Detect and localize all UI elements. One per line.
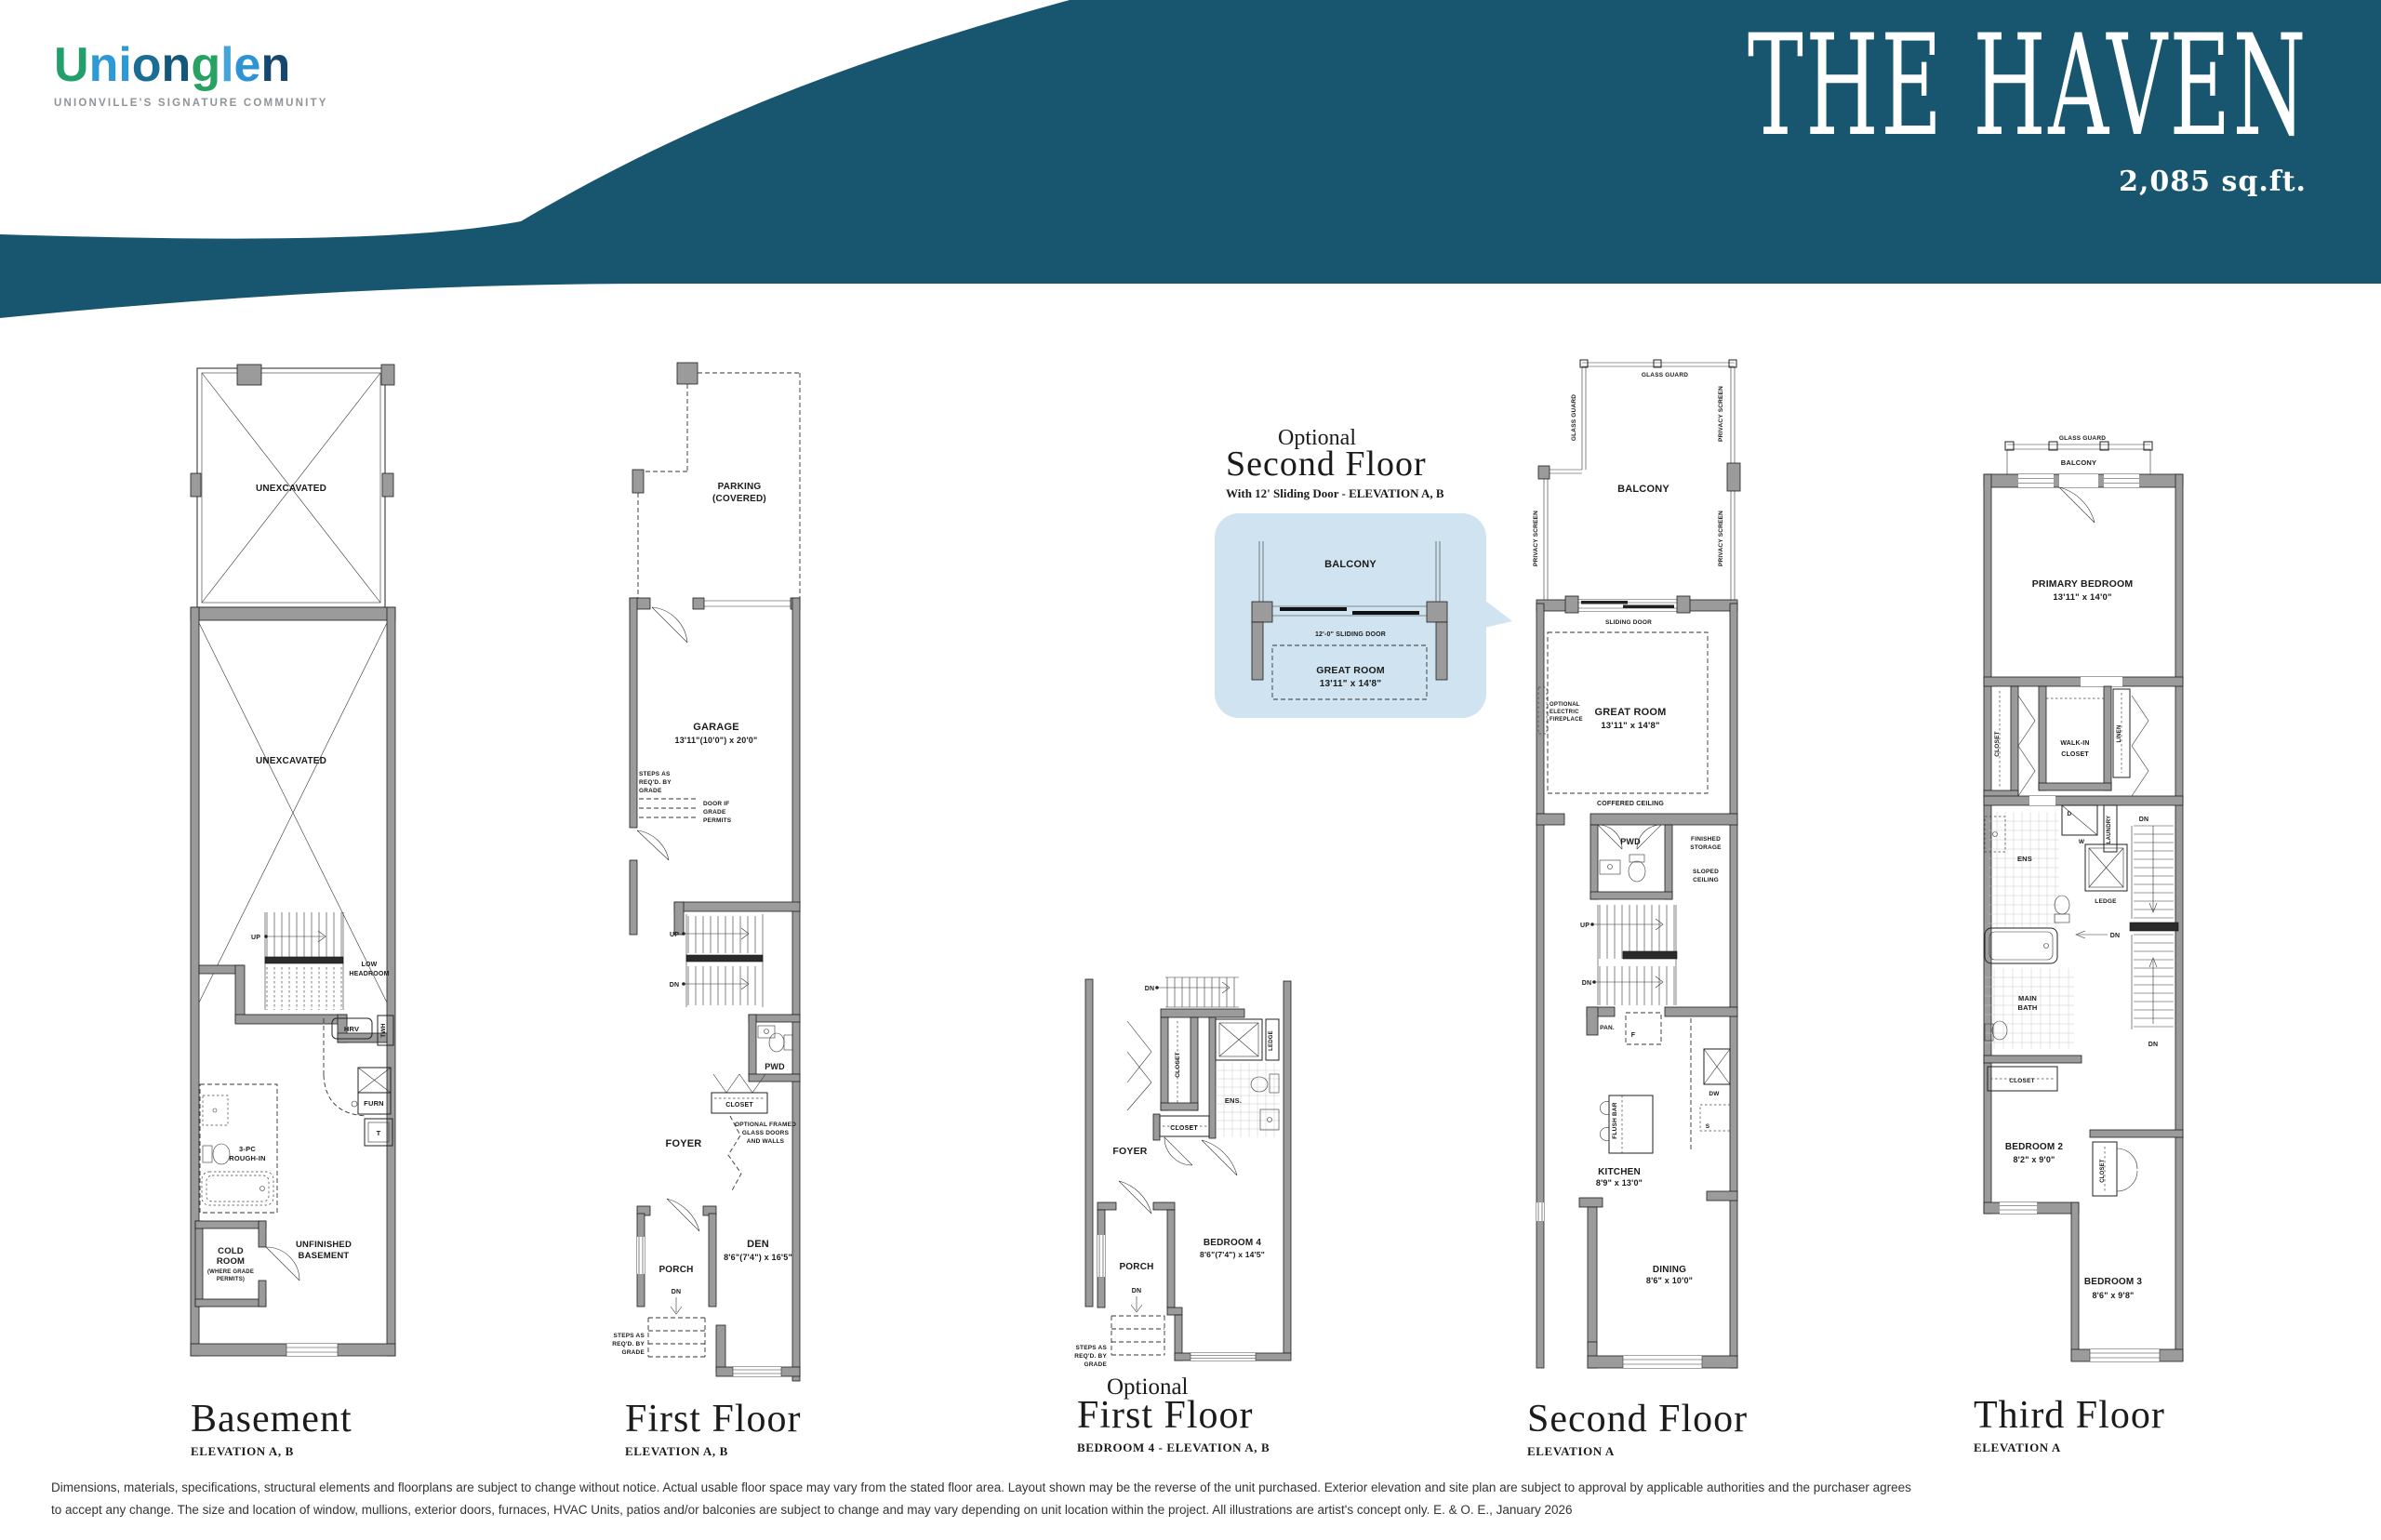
callout-drawing: BALCONY 12'-0" SLIDING DOOR GREAT ROOM 1… <box>1215 513 1486 718</box>
first-den: DEN 8'6"(7'4") x 16'5" <box>716 1239 800 1376</box>
svg-text:STEPS AS: STEPS AS <box>1075 1345 1107 1351</box>
svg-text:DN: DN <box>2139 816 2149 823</box>
svg-text:COLD: COLD <box>218 1246 244 1256</box>
svg-text:(WHERE GRADE: (WHERE GRADE <box>207 1269 254 1275</box>
disclaimer-line-2: to accept any change. The size and locat… <box>51 1499 2344 1521</box>
svg-text:S: S <box>1706 1123 1710 1130</box>
svg-text:PWD: PWD <box>1620 837 1641 846</box>
svg-text:AND WALLS: AND WALLS <box>747 1138 785 1145</box>
svg-text:STEPS AS: STEPS AS <box>613 1333 645 1339</box>
svg-text:DN: DN <box>670 982 680 989</box>
svg-text:PRIVACY SCREEN: PRIVACY SCREEN <box>1718 511 1724 566</box>
svg-text:UP: UP <box>1580 923 1590 929</box>
third-floor-caption: Third Floor ELEVATION A <box>1974 1393 2165 1455</box>
svg-text:CLOSET: CLOSET <box>725 1102 753 1109</box>
third-primary-bedroom: PRIMARY BEDROOM 13'11" x 14'0" <box>2032 578 2134 603</box>
svg-text:DN: DN <box>672 1289 682 1295</box>
svg-text:CLOSET: CLOSET <box>1994 731 2001 757</box>
svg-text:DOOR IF: DOOR IF <box>703 801 729 807</box>
svg-text:8'6"(7'4") x 16'5": 8'6"(7'4") x 16'5" <box>724 1253 792 1262</box>
basement-stairs: UP LOW HEADROOM <box>251 912 390 1010</box>
first-floor-plan: PARKING (COVERED) GARAGE 13'11"(10'0") x… <box>609 358 814 1400</box>
second-sliding-door-wall: SLIDING DOOR <box>1536 596 1737 626</box>
svg-text:GLASS DOORS: GLASS DOORS <box>742 1130 790 1136</box>
square-footage: 2,085 sq.ft. <box>2119 166 2307 198</box>
svg-text:8'6"(7'4") x 14'5": 8'6"(7'4") x 14'5" <box>1200 1250 1265 1259</box>
svg-text:REQ'D. BY: REQ'D. BY <box>1074 1353 1107 1360</box>
svg-text:3-PC: 3-PC <box>239 1145 256 1153</box>
svg-text:8'6" x 10'0": 8'6" x 10'0" <box>1646 1276 1693 1285</box>
svg-text:UNEXCAVATED: UNEXCAVATED <box>256 484 326 494</box>
svg-text:REQ'D. BY: REQ'D. BY <box>639 779 672 786</box>
svg-text:MAIN: MAIN <box>2018 994 2037 1002</box>
svg-text:BEDROOM 2: BEDROOM 2 <box>2005 1142 2064 1152</box>
svg-text:CLOSET: CLOSET <box>1175 1052 1181 1078</box>
svg-text:8'9" x 13'0": 8'9" x 13'0" <box>1596 1178 1643 1188</box>
svg-text:FIREPLACE: FIREPLACE <box>1550 717 1583 723</box>
svg-text:GARAGE: GARAGE <box>693 722 738 733</box>
first-optional-glass: OPTIONAL FRAMED GLASS DOORS AND WALLS <box>728 1116 796 1192</box>
basement-plan: UNEXCAVATED UNEXCAVATED UP LOW HEADROOM … <box>184 361 398 1388</box>
second-great-room: GREAT ROOM 13'11" x 14'8" OPTIONAL ELECT… <box>1538 632 1708 807</box>
svg-text:REQ'D. BY: REQ'D. BY <box>612 1341 645 1347</box>
svg-text:ROOM: ROOM <box>217 1256 245 1267</box>
basement-roughin-bath: 3-PC ROUGH-IN <box>200 1084 277 1213</box>
basement-cold-room: COLD ROOM (WHERE GRADE PERMITS) <box>195 1221 299 1307</box>
svg-text:BATH: BATH <box>2017 1003 2037 1012</box>
logo-tagline: UNIONVILLE'S SIGNATURE COMMUNITY <box>54 98 328 109</box>
svg-text:UNEXCAVATED: UNEXCAVATED <box>256 756 326 766</box>
third-bedroom2: BEDROOM 2 8'2" x 9'0" <box>1984 1142 2079 1361</box>
second-kitchen: PAN. F DW S FLUSH BAR KITCHEN 8'9" x 13'… <box>1587 1007 1737 1188</box>
svg-text:LEDGE: LEDGE <box>1269 1030 1274 1051</box>
svg-text:PRIMARY BEDROOM: PRIMARY BEDROOM <box>2032 578 2134 590</box>
second-balcony: GLASS GUARD GLASS GUARD PRIVACY SCREEN P… <box>1533 360 1740 604</box>
svg-text:BEDROOM 3: BEDROOM 3 <box>2084 1277 2143 1287</box>
svg-text:PORCH: PORCH <box>658 1265 693 1275</box>
svg-text:(COVERED): (COVERED) <box>712 494 766 504</box>
svg-text:GREAT ROOM: GREAT ROOM <box>1595 707 1667 718</box>
svg-text:GLASS GUARD: GLASS GUARD <box>2059 435 2106 442</box>
svg-text:OPTIONAL FRAMED: OPTIONAL FRAMED <box>735 1122 796 1128</box>
svg-text:COFFERED CEILING: COFFERED CEILING <box>1597 801 1664 807</box>
svg-text:PWD: PWD <box>765 1062 785 1071</box>
basement-unexcavated-lower: UNEXCAVATED <box>199 623 387 1042</box>
svg-text:UP: UP <box>670 932 679 938</box>
disclaimer-line-1: Dimensions, materials, specifications, s… <box>51 1477 2344 1499</box>
svg-text:LINEN: LINEN <box>2117 725 2122 743</box>
svg-text:13'11" x 14'0": 13'11" x 14'0" <box>2053 592 2111 603</box>
svg-text:PERMITS: PERMITS <box>703 817 732 824</box>
svg-text:GLASS GUARD: GLASS GUARD <box>1642 372 1688 378</box>
plan-title: THE HAVEN <box>1748 17 2308 156</box>
svg-text:OPTIONAL: OPTIONAL <box>1550 702 1580 708</box>
opt1-stairs: DN <box>1145 977 1239 1007</box>
second-powder-storage: PWD FINISHED STORAGE SLOPED CEILING <box>1536 814 1737 899</box>
svg-text:BALCONY: BALCONY <box>1324 559 1377 570</box>
svg-text:GREAT ROOM: GREAT ROOM <box>1316 665 1385 676</box>
svg-text:HEADROOM: HEADROOM <box>349 971 389 977</box>
svg-text:13'11" x 14'8": 13'11" x 14'8" <box>1601 721 1659 731</box>
svg-text:DINING: DINING <box>1653 1265 1686 1275</box>
svg-text:CLOSET: CLOSET <box>2100 1159 2106 1183</box>
basement-bottom-wall <box>191 1344 395 1356</box>
svg-text:FOYER: FOYER <box>666 1138 702 1149</box>
optional-second-floor-heading: Second Floor <box>1226 444 1444 485</box>
svg-text:GRADE: GRADE <box>622 1349 645 1356</box>
opt1-closet-vertical: CLOSET <box>1127 1017 1198 1110</box>
svg-text:FOYER: FOYER <box>1112 1146 1147 1157</box>
svg-text:13'11"(10'0") x 20'0": 13'11"(10'0") x 20'0" <box>675 736 758 745</box>
svg-text:DN: DN <box>1582 980 1592 987</box>
svg-text:ENS: ENS <box>2017 855 2032 863</box>
opt1-ensuite: LEDGE ENS. <box>1209 1017 1280 1138</box>
second-dining: DINING 8'6" x 10'0" <box>1536 1191 1737 1368</box>
svg-text:DN: DN <box>2110 933 2121 939</box>
brochure-page: Unionglen UNIONVILLE'S SIGNATURE COMMUNI… <box>0 0 2381 1540</box>
svg-text:DN: DN <box>1145 986 1155 992</box>
svg-text:LAUNDRY: LAUNDRY <box>2107 816 2112 844</box>
svg-text:PAN.: PAN. <box>1600 1025 1615 1031</box>
svg-text:STEPS AS: STEPS AS <box>639 771 671 777</box>
svg-text:12'-0" SLIDING DOOR: 12'-0" SLIDING DOOR <box>1315 631 1386 638</box>
svg-text:BALCONY: BALCONY <box>1617 484 1669 495</box>
first-floor-caption: First Floor ELEVATION A, B <box>625 1397 802 1459</box>
basement-caption: Basement ELEVATION A, B <box>191 1397 352 1459</box>
svg-text:FURN: FURN <box>364 1099 384 1108</box>
svg-text:UNFINISHED: UNFINISHED <box>296 1240 352 1250</box>
svg-text:13'11" x 14'8": 13'11" x 14'8" <box>1320 679 1382 689</box>
logo-wordmark: Unionglen <box>54 37 328 93</box>
basement-unexcavated-top: UNEXCAVATED <box>191 365 394 607</box>
svg-text:PRIVACY SCREEN: PRIVACY SCREEN <box>1533 511 1539 566</box>
svg-text:GLASS GUARD: GLASS GUARD <box>1571 394 1577 441</box>
svg-text:PERMITS): PERMITS) <box>217 1277 245 1282</box>
svg-text:CLOSET: CLOSET <box>2009 1078 2035 1084</box>
svg-text:T: T <box>377 1129 381 1137</box>
svg-text:BALCONY: BALCONY <box>2061 458 2096 467</box>
opt1-closet-horizontal: CLOSET <box>1153 1114 1209 1165</box>
svg-text:PORCH: PORCH <box>1119 1262 1153 1272</box>
svg-text:D: D <box>2068 811 2072 817</box>
svg-text:ROUGH-IN: ROUGH-IN <box>229 1154 266 1162</box>
svg-text:CLOSET: CLOSET <box>2061 751 2089 758</box>
svg-text:GRADE: GRADE <box>1084 1361 1108 1368</box>
svg-text:BEDROOM 4: BEDROOM 4 <box>1204 1238 1262 1248</box>
second-floor-plan: GLASS GUARD GLASS GUARD PRIVACY SCREEN P… <box>1525 356 1749 1384</box>
third-main-bath: MAIN BATH CLOSET <box>1984 928 2082 1091</box>
svg-text:DN: DN <box>2148 1042 2159 1048</box>
svg-text:ENS.: ENS. <box>1225 1096 1242 1105</box>
svg-text:PRIVACY SCREEN: PRIVACY SCREEN <box>1718 386 1724 442</box>
svg-text:WALK-IN: WALK-IN <box>2060 740 2089 747</box>
optional-second-floor-title: Optional Second Floor With 12' Sliding D… <box>1226 426 1444 501</box>
unionglen-logo: Unionglen UNIONVILLE'S SIGNATURE COMMUNI… <box>54 37 328 109</box>
svg-text:F: F <box>1631 1032 1636 1039</box>
svg-text:LEDGE: LEDGE <box>2095 898 2117 905</box>
svg-text:SLIDING DOOR: SLIDING DOOR <box>1605 619 1652 626</box>
svg-text:8'2" x 9'0": 8'2" x 9'0" <box>2013 1155 2055 1164</box>
svg-text:CLOSET: CLOSET <box>1170 1125 1198 1132</box>
second-stairs: UP DN <box>1580 905 1677 1005</box>
svg-text:KITCHEN: KITCHEN <box>1598 1167 1641 1177</box>
third-floor-plan: GLASS GUARD BALCONY PRIMARY BEDROOM 13'1… <box>1974 356 2197 1379</box>
optional-first-floor-caption: Optional First Floor BEDROOM 4 - ELEVATI… <box>1077 1374 1270 1455</box>
svg-text:ELECTRIC: ELECTRIC <box>1550 710 1579 715</box>
svg-text:W: W <box>2079 839 2085 845</box>
disclaimer: Dimensions, materials, specifications, s… <box>51 1477 2344 1521</box>
first-porch: PORCH DN STEPS AS REQ'D. BY GRADE <box>612 1206 716 1357</box>
svg-text:DEN: DEN <box>747 1239 769 1250</box>
svg-text:BASEMENT: BASEMENT <box>299 1251 350 1261</box>
svg-text:GRADE: GRADE <box>703 809 726 816</box>
third-bedroom3: CLOSET BEDROOM 3 8'6" x 9'8" <box>2071 1130 2183 1361</box>
svg-text:STORAGE: STORAGE <box>1690 844 1722 851</box>
svg-text:HRV: HRV <box>344 1025 359 1033</box>
third-closets: CLOSET WALK-IN CLOSET LINEN <box>1984 677 2183 798</box>
svg-text:LOW: LOW <box>362 962 378 968</box>
third-top-wall <box>1984 474 2183 523</box>
svg-text:PARKING: PARKING <box>718 482 762 492</box>
svg-text:FLUSH BAR: FLUSH BAR <box>1612 1102 1618 1138</box>
opt1-bedroom4: BEDROOM 4 8'6"(7'4") x 14'5" <box>1167 1238 1291 1361</box>
svg-text:CEILING: CEILING <box>1693 877 1719 883</box>
svg-text:SLOPED: SLOPED <box>1693 869 1719 875</box>
third-balcony: GLASS GUARD BALCONY <box>2005 435 2152 474</box>
svg-text:GRADE: GRADE <box>639 788 662 794</box>
second-floor-caption: Second Floor ELEVATION A <box>1527 1397 1748 1459</box>
optional-second-floor-subtitle: With 12' Sliding Door - ELEVATION A, B <box>1226 486 1444 501</box>
svg-text:DN: DN <box>1132 1288 1142 1294</box>
first-parking: PARKING (COVERED) <box>632 363 800 598</box>
optional-first-floor-plan: DN CLOSET LEDGE ENS. <box>1060 970 1293 1388</box>
svg-text:UP: UP <box>251 935 260 941</box>
svg-text:FINISHED: FINISHED <box>1691 836 1721 843</box>
svg-text:DW: DW <box>1709 1091 1720 1097</box>
svg-text:TWH: TWH <box>380 1023 387 1038</box>
svg-text:8'6" x 9'8": 8'6" x 9'8" <box>2092 1291 2134 1300</box>
